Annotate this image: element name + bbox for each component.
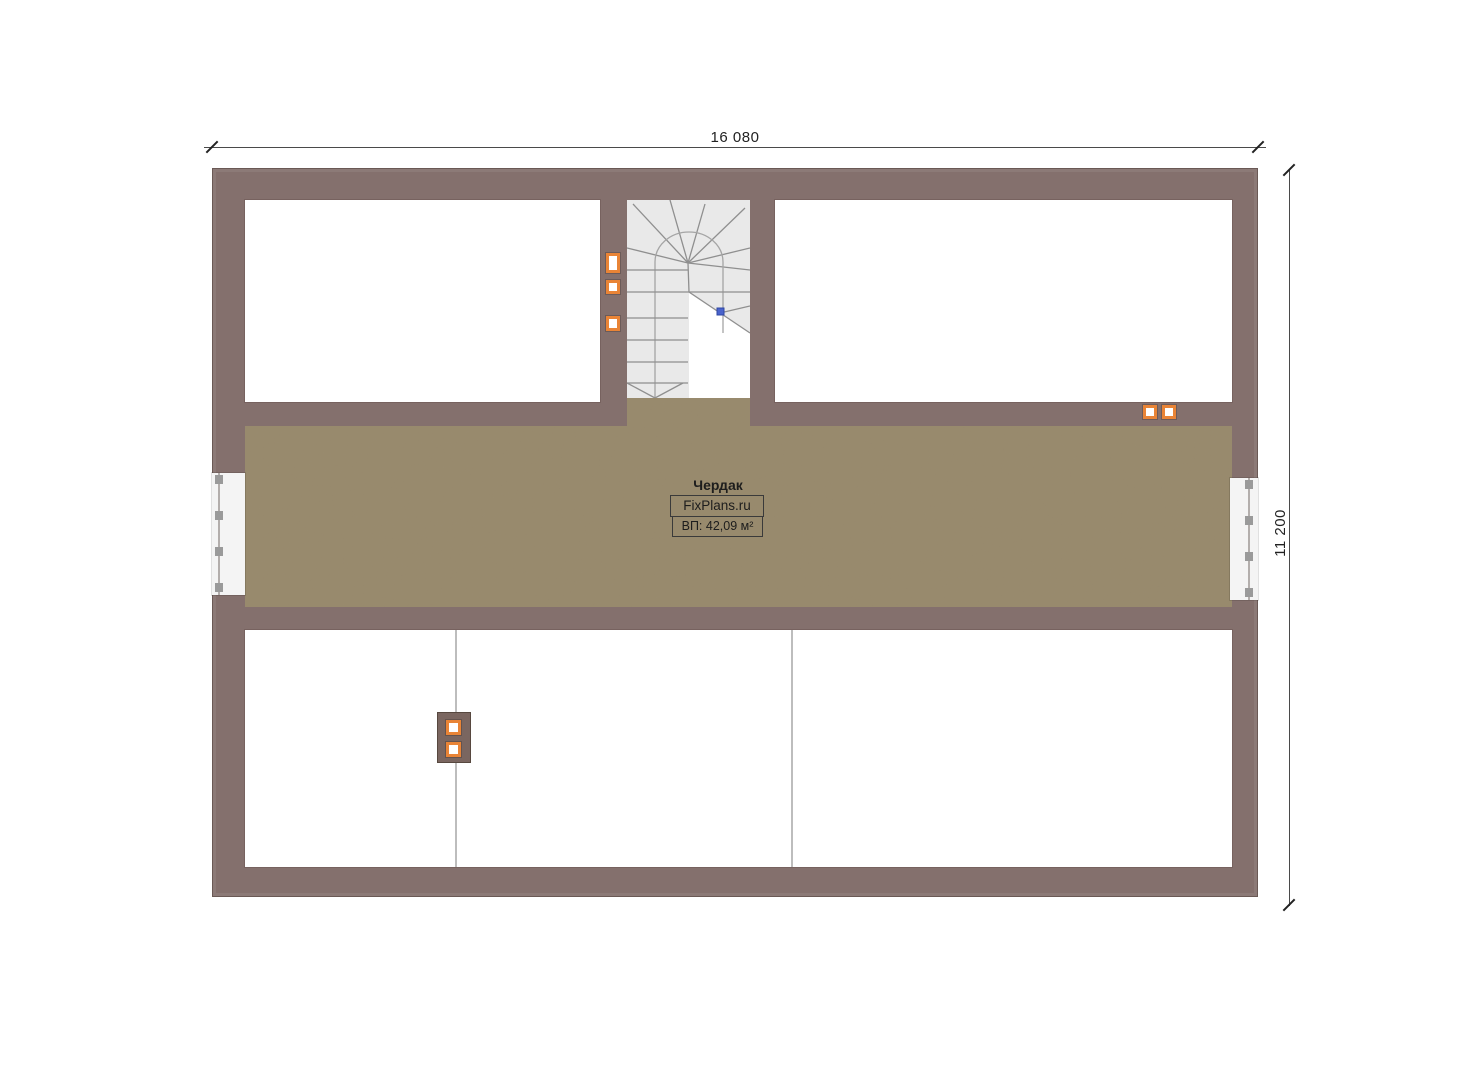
chimney-block (437, 712, 471, 763)
dimension-height-label: 11 200 (1272, 498, 1288, 568)
floor-plan-canvas: 16 080 11 200 (0, 0, 1474, 1080)
window-left (212, 473, 245, 595)
partition-line-right (791, 630, 793, 867)
stairwell (627, 200, 750, 398)
stair-direction-marker (717, 308, 724, 315)
flue-icon (446, 742, 461, 757)
vent-icon (606, 253, 620, 273)
room-title: Чердак (633, 477, 803, 493)
room-top-left (245, 200, 600, 402)
watermark-label: FixPlans.ru (670, 495, 764, 517)
flue-icon (446, 720, 461, 735)
vent-icon (1162, 405, 1176, 419)
vent-icon (1143, 405, 1157, 419)
dimension-width-label: 16 080 (204, 129, 1266, 146)
vent-icon (606, 316, 620, 331)
room-top-right (775, 200, 1232, 402)
room-bottom (245, 630, 1232, 867)
staircase-drawing (627, 200, 750, 398)
window-right (1230, 478, 1258, 600)
vent-icon (606, 280, 620, 294)
dimension-top-line (204, 147, 1266, 148)
dimension-right-line (1289, 170, 1290, 906)
area-label: ВП: 42,09 м² (672, 516, 763, 537)
